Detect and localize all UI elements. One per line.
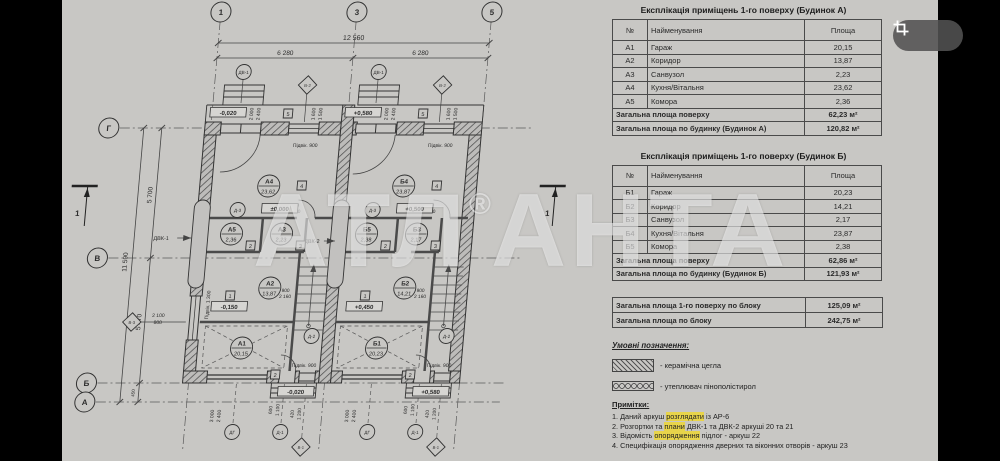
plan-text: 20,23 [369, 352, 384, 358]
table-cell: Загальна площа 1-го поверху по блоку [613, 298, 806, 313]
plan-text: А5 [228, 227, 237, 234]
notes: Примітки: 1. Даний аркуш розглядати із А… [612, 400, 875, 450]
highlighted-word: плани [664, 422, 684, 431]
plan-text: Д-2 [443, 334, 451, 339]
plan-text: 2 [249, 244, 253, 250]
plan-text: -0,020 [219, 111, 237, 117]
table-total-row: Загальна площа по будинку (Будинок А)120… [613, 122, 882, 136]
plan-text: 1 [545, 209, 551, 218]
col-header-name: Найменування [648, 20, 805, 41]
table-total-row: Загальна площа по блоку242,75 м² [613, 313, 883, 328]
plan-text: 2 400 [351, 410, 358, 423]
plan-text: 23,87 [396, 190, 411, 196]
plan-text: Б2 [401, 281, 410, 288]
plan-text: 13,87 [262, 292, 277, 298]
legend-item-label: - керамічна цегла [660, 361, 721, 370]
table-row: А2Коридор13,87 [613, 54, 882, 68]
table-cell: 23,62 [805, 81, 882, 95]
table-cell: Комора [648, 95, 805, 109]
table-cell: Коридор [648, 54, 805, 68]
legend-item-brick: - керамічна цегла [612, 359, 875, 372]
plan-text: А1 [238, 341, 247, 348]
table-cell: Загальна площа по блоку [613, 313, 806, 328]
plan-text: 6 280 [277, 50, 294, 57]
plan-text: 2,17 [410, 238, 421, 244]
table-cell: Комора [648, 240, 805, 254]
plan-text: 2 000 [383, 108, 390, 121]
plan-text: 420 [424, 410, 431, 418]
plan-text: 2,38 [360, 238, 371, 244]
plan-text: 600 [268, 406, 275, 414]
plan-text: 14,21 [397, 292, 412, 298]
table-a-title: Експлікація приміщень 1-го поверху (Буди… [612, 5, 875, 15]
plan-text: 2 400 [255, 108, 262, 121]
plan-text: -0,150 [220, 305, 238, 311]
plan-text: 1 [363, 294, 367, 300]
table-cell: Б3 [613, 213, 648, 227]
plan-text: 900 [281, 288, 290, 294]
plan-text: ДВК-1 [153, 236, 169, 242]
plan-text: ДГ [229, 430, 236, 435]
plan-text: 600 [403, 406, 410, 414]
table-cell: 2,36 [805, 95, 882, 109]
plan-text: 1 [75, 209, 81, 218]
table-cell: Санвузол [648, 213, 805, 227]
table-cell: 2,38 [805, 240, 882, 254]
table-cell: Б2 [613, 200, 648, 214]
note-item: 4. Специфікація опорядження дверних та в… [612, 441, 875, 451]
table-cell: Загальна площа по будинку (Будинок Б) [613, 267, 805, 281]
plan-text: 1 [228, 294, 232, 300]
plan-text: 1 600 [445, 108, 452, 121]
table-cell: 23,87 [805, 227, 882, 241]
plan-text: 12 560 [343, 35, 365, 42]
table-cell: Коридор [648, 200, 805, 214]
plan-text: 900 [416, 288, 425, 294]
notes-title: Примітки: [612, 400, 875, 409]
table-cell: 2,17 [805, 213, 882, 227]
plan-text: Б [83, 379, 90, 388]
legend-title: Умовні позначення: [612, 341, 875, 350]
table-cell: Гараж [648, 186, 805, 200]
screen: 135ГВБА12 5606 2806 28011 5905 7005 4704… [0, 0, 1000, 461]
plan-text: ДВ-1 [373, 70, 384, 75]
plan-text: 3 000 [209, 410, 216, 423]
plan-text: 4 [300, 184, 304, 190]
plan-text: 5 [421, 112, 425, 118]
plan-text: 2 160 [414, 294, 427, 300]
table-row: А5Комора2,36 [613, 95, 882, 109]
plan-text: 800 [153, 320, 162, 326]
plan-text: 5 700 [146, 187, 154, 204]
legend-item-label: - утеплювач пінополістирол [660, 382, 756, 391]
plan-text: 3 000 [344, 410, 351, 423]
plan-labels: 135ГВБА12 5606 2806 28011 5905 7005 4704… [54, 2, 569, 456]
plan-text: ±0,000 [270, 207, 289, 213]
table-cell: 62,23 м² [805, 108, 882, 122]
legend-item-insulation: - утеплювач пінополістирол [612, 381, 875, 391]
table-cell: 242,75 м² [806, 313, 883, 328]
table-block-totals: Загальна площа 1-го поверху по блоку125,… [612, 297, 883, 328]
plan-text: +0,500 [405, 207, 425, 213]
table-row: Б1Гараж20,23 [613, 186, 882, 200]
plan-text: 1 100 [410, 404, 417, 416]
plan-text: +0,450 [355, 305, 375, 311]
table-cell: А4 [613, 81, 648, 95]
plan-text: 2 [408, 373, 412, 379]
plan-text: Д-1 [411, 430, 419, 435]
plan-text: 3 [434, 244, 438, 250]
crop-icon [893, 20, 909, 36]
note-item: 3. Відомість опорядження підлог - аркуш … [612, 431, 875, 441]
plan-text: 2 100 [152, 313, 165, 319]
plan-text: Д-3 [369, 208, 377, 213]
table-row: А1Гараж20,15 [613, 41, 882, 55]
highlighted-word: розглядати [666, 412, 704, 421]
plan-text: 1 500 [452, 108, 459, 121]
plan-text: Б4 [400, 179, 409, 186]
plan-text: 20,15 [234, 352, 249, 358]
table-cell: Загальна площа поверху [613, 108, 805, 122]
plan-group: 135ГВБА12 5606 2806 28011 5905 7005 4704… [48, 2, 582, 456]
table-cell: 14,21 [805, 200, 882, 214]
highlighted-word: опорядження [654, 431, 699, 440]
table-row: Б3Санвузол2,17 [613, 213, 882, 227]
plan-text: 2 [273, 373, 277, 379]
plan-text: +0,580 [354, 111, 374, 117]
table-cell: А1 [613, 41, 648, 55]
plan-text: Б3 [413, 227, 422, 234]
plan-text: Д-1 [276, 430, 284, 435]
plan-text: В-2 [439, 83, 447, 88]
stairs [293, 264, 464, 330]
plan-text: Д-2 [308, 334, 316, 339]
table-cell: 2,23 [805, 68, 882, 82]
insulation-hatch-swatch [612, 381, 654, 391]
table-cell: Кухня/Вітальня [648, 81, 805, 95]
plan-text: 2 400 [390, 108, 397, 121]
legend: Умовні позначення: - керамічна цегла - у… [612, 341, 875, 391]
plan-text: В-1 [432, 445, 440, 450]
plan-text: 3 [299, 244, 303, 250]
plan-text: +0,580 [421, 390, 441, 396]
plan-text: -0,020 [287, 390, 305, 396]
table-total-row: Загальна площа 1-го поверху по блоку125,… [613, 298, 883, 313]
table-cell: 62,86 м² [805, 254, 882, 268]
dimension-lines [117, 40, 493, 405]
plan-text: Б5 [363, 227, 372, 234]
brick-hatch-swatch [612, 359, 654, 372]
col-header-area: Площа [805, 165, 882, 186]
note-item: 1. Даний аркуш розглядати із АР-6 [612, 412, 875, 422]
table-cell: Б4 [613, 227, 648, 241]
table-row: А4Кухня/Вітальня23,62 [613, 81, 882, 95]
table-row: Б2Коридор14,21 [613, 200, 882, 214]
table-total-row: Загальна площа поверху62,86 м² [613, 254, 882, 268]
table-cell: Загальна площа по будинку (Будинок А) [613, 122, 805, 136]
table-cell: Гараж [648, 41, 805, 55]
floor-plan-drawing: 135ГВБА12 5606 2806 28011 5905 7005 4704… [0, 0, 610, 461]
section-markers [68, 186, 565, 226]
plan-text: ДГ [364, 430, 371, 435]
plan-text: В [94, 254, 101, 263]
plan-text: Підвік. 900 [291, 363, 316, 369]
plan-text: 2 [384, 244, 388, 250]
plan-text: 1 200 [296, 408, 303, 420]
plan-text: 6 280 [412, 50, 429, 57]
plan-text: 1 600 [310, 108, 317, 121]
table-house-b: № Найменування Площа Б1Гараж20,23Б2Корид… [612, 165, 882, 282]
plan-text: Підвік. 900 [293, 143, 318, 149]
table-total-row: Загальна площа по будинку (Будинок Б)121… [613, 267, 882, 281]
table-b-title: Експлікація приміщень 1-го поверху (Буди… [612, 151, 875, 161]
plan-text: Д-3 [234, 208, 242, 213]
note-item: 2. Розгортки та плани ДВК-1 та ДВК-2 арк… [612, 422, 875, 432]
plan-text: Підвік. 900 [428, 143, 453, 149]
plan-text: 1 200 [431, 408, 438, 420]
table-cell: Загальна площа поверху [613, 254, 805, 268]
table-cell: Кухня/Вітальня [648, 227, 805, 241]
plan-text: 23,62 [261, 190, 276, 196]
table-cell: 20,15 [805, 41, 882, 55]
table-cell: Б5 [613, 240, 648, 254]
plan-text: 11 590 [121, 252, 130, 272]
plan-text: А2 [266, 281, 275, 288]
plan-text: 2,36 [225, 238, 236, 244]
col-header-name: Найменування [648, 165, 805, 186]
plan-text: 2 400 [216, 410, 223, 423]
plan-text: В-2 [304, 83, 312, 88]
table-cell: Санвузол [648, 68, 805, 82]
table-cell: 13,87 [805, 54, 882, 68]
plan-text: ДВК-2 [304, 239, 320, 245]
table-total-row: Загальна площа поверху62,23 м² [613, 108, 882, 122]
table-row: Б5Комора2,38 [613, 240, 882, 254]
plan-text: В-1 [297, 445, 305, 450]
col-header-num: № [613, 20, 648, 41]
plan-text: Підвік. 900 [426, 363, 451, 369]
plan-text: А3 [278, 227, 287, 234]
plan-text: 4 [435, 184, 439, 190]
plan-text: 2 000 [248, 108, 255, 121]
plan-text: 1 100 [275, 404, 282, 416]
plan-text: 2,23 [275, 238, 286, 244]
col-header-area: Площа [805, 20, 882, 41]
plan-text: 1 500 [317, 108, 324, 121]
table-house-a: № Найменування Площа А1Гараж20,15А2Корид… [612, 19, 882, 136]
plan-text: А4 [265, 179, 274, 186]
table-row: Б4Кухня/Вітальня23,87 [613, 227, 882, 241]
table-cell: А5 [613, 95, 648, 109]
plan-text: 450 [130, 389, 136, 397]
table-cell: 121,93 м² [805, 267, 882, 281]
plan-text: В-3 [128, 320, 136, 325]
plan-text: ДВ-1 [238, 70, 249, 75]
plan-text: 420 [289, 410, 296, 418]
plan-text: А [82, 398, 89, 407]
table-cell: А2 [613, 54, 648, 68]
plan-text: 2 160 [279, 294, 292, 300]
plan-text: 5 [286, 112, 290, 118]
table-cell: 125,09 м² [806, 298, 883, 313]
crop-button[interactable] [893, 20, 963, 51]
table-row: А3Санвузол2,23 [613, 68, 882, 82]
explication-panel: Експлікація приміщень 1-го поверху (Буди… [612, 2, 875, 450]
table-cell: 20,23 [805, 186, 882, 200]
col-header-num: № [613, 165, 648, 186]
plan-text: Б1 [373, 341, 382, 348]
axis-lines [92, 20, 544, 450]
table-cell: 120,82 м² [805, 122, 882, 136]
table-cell: Б1 [613, 186, 648, 200]
table-cell: А3 [613, 68, 648, 82]
